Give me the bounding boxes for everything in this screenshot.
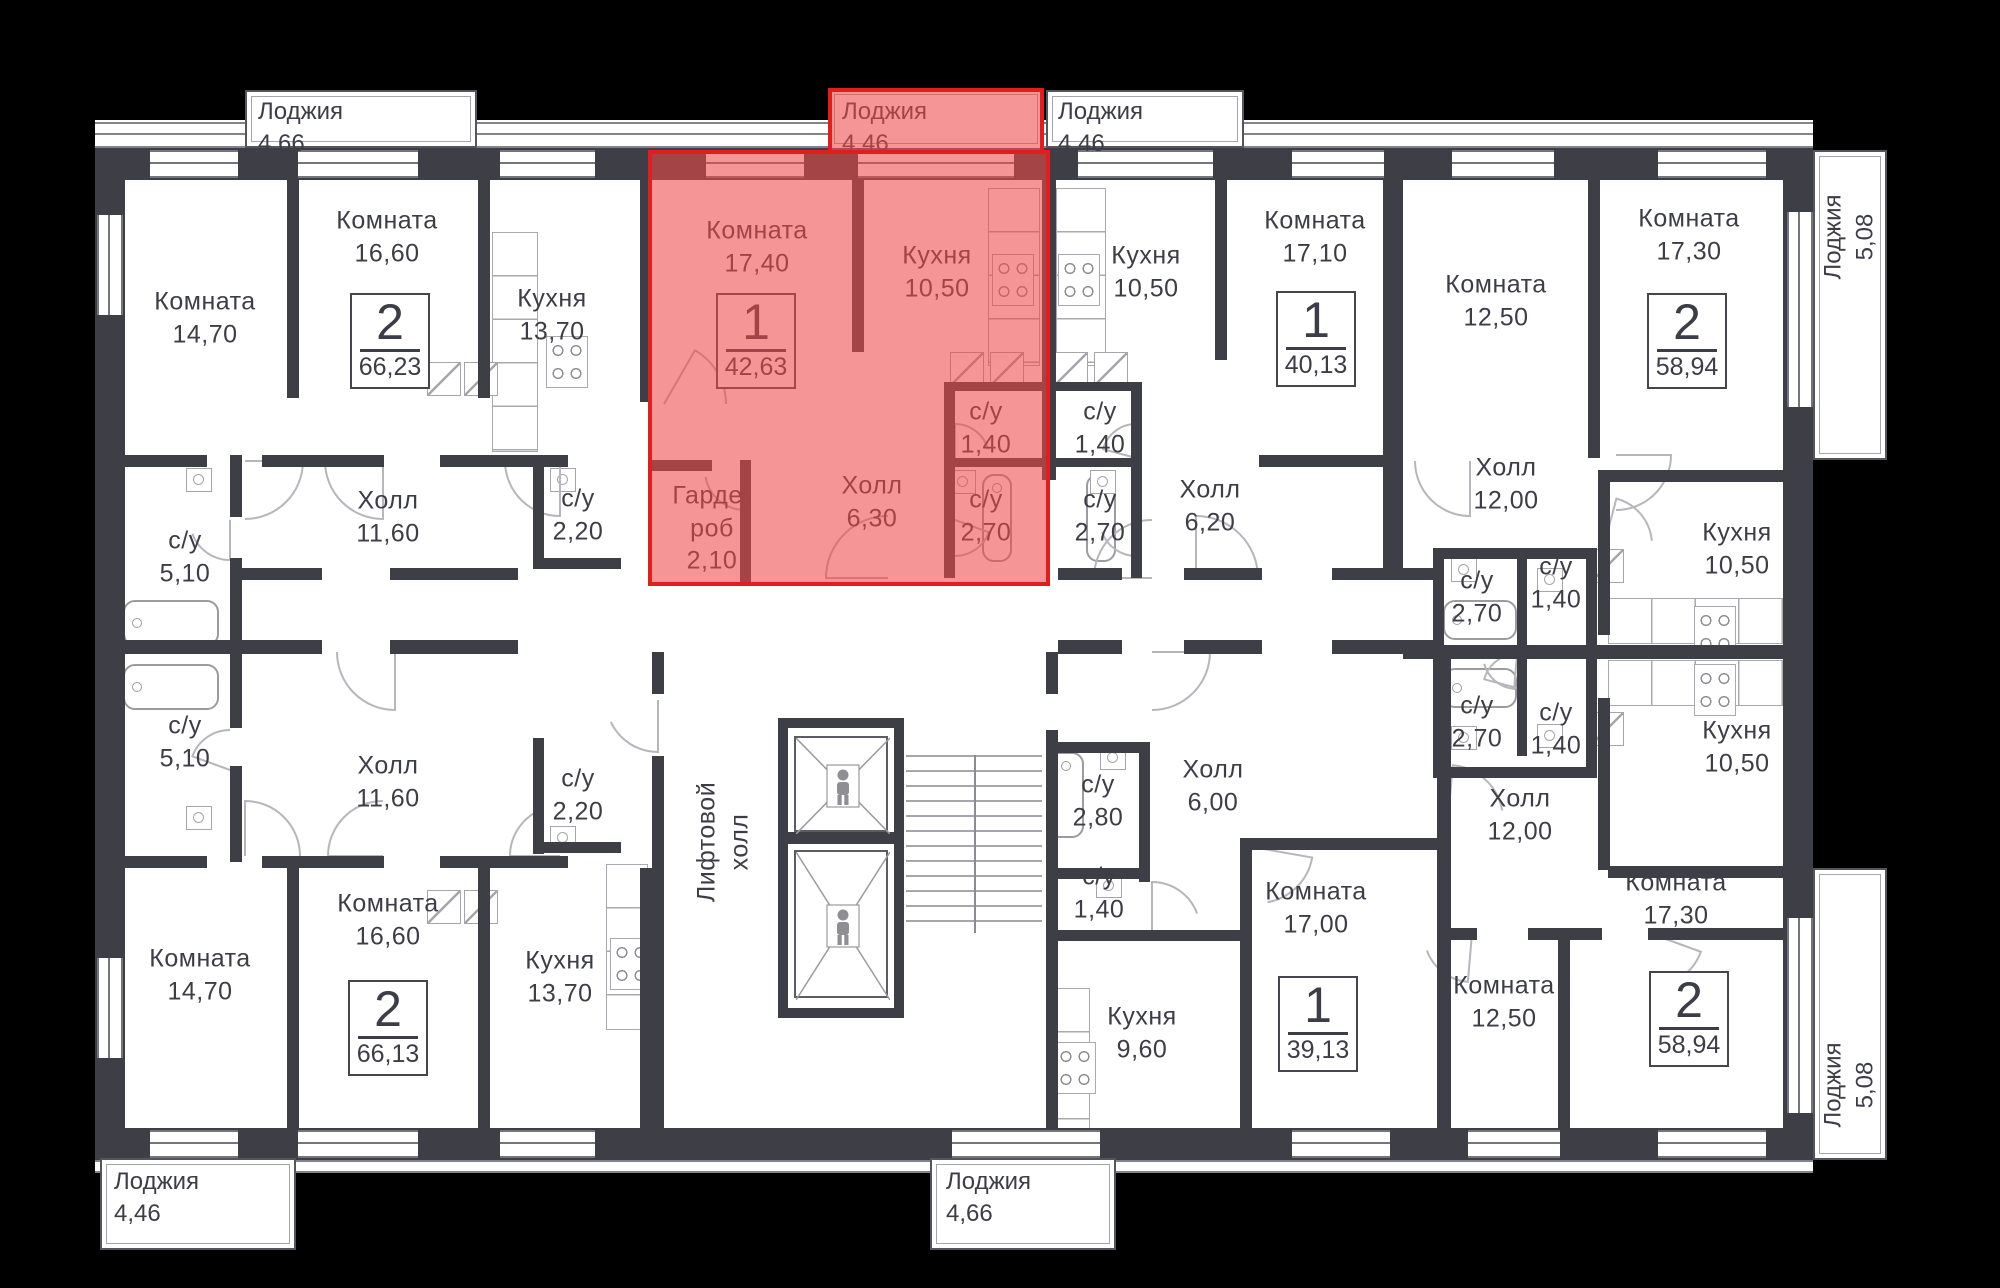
wall — [1131, 382, 1142, 578]
room-area: 16,60 — [336, 237, 437, 270]
loggia-name: Лоджия — [1818, 1042, 1850, 1127]
room-area: 5,10 — [160, 557, 211, 590]
room-name: с/у — [1531, 697, 1582, 730]
room-area: 12,50 — [1453, 1002, 1554, 1035]
room-name: Кухня — [525, 945, 594, 978]
apartment-badge[interactable]: 266,13 — [348, 980, 428, 1076]
apartment-badge[interactable]: 266,23 — [350, 293, 430, 389]
room-name: Кухня — [1107, 1001, 1176, 1034]
room-label: Кухня10,50 — [1111, 240, 1180, 305]
room-label: с/у2,70 — [1075, 484, 1126, 549]
room-name: с/у — [1452, 565, 1503, 598]
room-area: 1,40 — [1531, 583, 1582, 616]
wall — [533, 738, 544, 854]
apartment-badge[interactable]: 258,94 — [1649, 971, 1729, 1067]
room-name: с/у — [553, 483, 604, 516]
badge-room-count: 2 — [352, 296, 428, 348]
badge-room-count: 2 — [350, 983, 426, 1035]
loggia-area: 4,66 — [946, 1198, 1031, 1230]
badge-room-count: 1 — [1280, 979, 1356, 1031]
room-label: Комната17,30 — [1638, 203, 1739, 268]
room-area: 17,30 — [1638, 235, 1739, 268]
room-label: Кухня10,50 — [1702, 517, 1771, 582]
wall — [478, 868, 490, 1128]
room-area: 10,50 — [1111, 272, 1180, 305]
room-area: 13,70 — [517, 315, 586, 348]
wall — [230, 455, 242, 517]
room-name: Холл — [1180, 474, 1241, 507]
room-label: Комната14,70 — [149, 943, 250, 1008]
room-name: Комната — [149, 943, 250, 976]
loggia-label: Лоджия4,66 — [258, 96, 343, 161]
window — [500, 1130, 595, 1158]
room-label: с/у2,20 — [553, 763, 604, 828]
window — [150, 150, 238, 178]
wall — [440, 455, 568, 467]
room-area: 17,30 — [1625, 899, 1726, 932]
badge-room-count: 2 — [1649, 296, 1725, 348]
window — [150, 1130, 238, 1158]
wall — [287, 868, 299, 1128]
wall — [1445, 928, 1477, 940]
badge-area: 66,13 — [350, 1040, 426, 1069]
room-label: с/у1,40 — [1075, 396, 1126, 461]
room-area: 12,50 — [1445, 301, 1546, 334]
badge-area: 39,13 — [1280, 1036, 1356, 1065]
loggia-name: Лоджия — [114, 1166, 199, 1198]
elevator — [794, 850, 888, 998]
wall — [1058, 640, 1122, 654]
wall — [1332, 640, 1433, 654]
sink — [186, 806, 212, 830]
wall — [778, 718, 904, 728]
cabinet-square — [1094, 352, 1128, 386]
wall — [533, 842, 621, 853]
apartment-badge[interactable]: 258,94 — [1647, 293, 1727, 389]
window — [298, 1130, 418, 1158]
room-label: Лифтовой холл — [691, 782, 756, 902]
cabinet-square — [1054, 352, 1088, 386]
room-area: 17,10 — [1264, 237, 1365, 270]
wall — [1046, 730, 1058, 1128]
wall — [1586, 548, 1597, 778]
room-name: с/у — [160, 525, 211, 558]
wall — [1528, 928, 1602, 940]
wall — [478, 178, 490, 398]
room-label: Комната14,70 — [154, 286, 255, 351]
room-area: 2,70 — [1452, 597, 1503, 630]
wall — [1139, 742, 1150, 882]
wall — [533, 558, 621, 569]
wall — [390, 568, 518, 580]
room-area: 6,20 — [1180, 506, 1241, 539]
room-label: с/у1,40 — [1074, 861, 1125, 926]
badge-room-count: 1 — [1278, 294, 1354, 346]
room-area: 11,60 — [356, 782, 419, 815]
room-name: Кухня — [517, 283, 586, 316]
room-name: Кухня — [1111, 240, 1180, 273]
wall — [652, 652, 664, 694]
room-name: с/у — [1075, 396, 1126, 429]
room-label: Комната16,60 — [336, 205, 437, 270]
elevator — [794, 736, 888, 832]
room-area: 1,40 — [1074, 893, 1125, 926]
wall — [894, 718, 904, 1018]
bathtub — [123, 664, 219, 710]
room-label: с/у2,80 — [1073, 769, 1124, 834]
loggia-name: Лоджия — [258, 96, 343, 128]
wall — [1403, 645, 1813, 659]
room-label: с/у2,70 — [1452, 690, 1503, 755]
wall — [440, 856, 568, 868]
room-name: Комната — [1453, 970, 1554, 1003]
window — [952, 1130, 1100, 1158]
wall — [1058, 568, 1122, 580]
loggia-area: 4,46 — [114, 1198, 199, 1230]
window — [1658, 150, 1766, 178]
room-area: 12,00 — [1487, 815, 1552, 848]
wall — [778, 718, 788, 1018]
stove — [1058, 254, 1100, 306]
highlighted-apartment[interactable] — [648, 150, 1050, 586]
wall — [1046, 742, 1146, 753]
room-label: Комната17,00 — [1265, 876, 1366, 941]
room-label: Кухня13,70 — [517, 283, 586, 348]
room-label: с/у2,70 — [1452, 565, 1503, 630]
wall — [230, 766, 242, 858]
stove — [1694, 664, 1736, 716]
wall — [1046, 930, 1248, 941]
window — [1292, 150, 1384, 178]
room-label: Комната17,30 — [1625, 867, 1726, 932]
room-name: Кухня — [1702, 715, 1771, 748]
wall — [1608, 470, 1783, 482]
room-label: с/у2,20 — [553, 483, 604, 548]
loggia-area: 5,08 — [1850, 194, 1882, 279]
wall — [1598, 470, 1610, 635]
room-area: 5,10 — [160, 742, 211, 775]
room-area: 2,80 — [1073, 801, 1124, 834]
room-name: с/у — [1074, 861, 1125, 894]
room-area: 10,50 — [1702, 549, 1771, 582]
room-label: Кухня10,50 — [1702, 715, 1771, 780]
room-name: Холл — [1487, 783, 1552, 816]
room-name: Холл — [1183, 754, 1244, 787]
room-name: с/у — [1452, 690, 1503, 723]
room-area: 10,50 — [1702, 747, 1771, 780]
loggia-label: Лоджия5,08 — [1818, 194, 1883, 279]
apartment-badge[interactable]: 139,13 — [1278, 976, 1358, 1072]
loggia-area: 4,66 — [258, 128, 343, 160]
room-area: 2,70 — [1452, 722, 1503, 755]
room-label: с/у1,40 — [1531, 697, 1582, 762]
stove — [1054, 1042, 1096, 1094]
room-area: 1,40 — [1531, 729, 1582, 762]
loggia-label: Лоджия4,66 — [946, 1166, 1031, 1231]
room-name: с/у — [1073, 769, 1124, 802]
wall — [640, 868, 652, 1128]
badge-area: 58,94 — [1651, 1031, 1727, 1060]
room-area: 17,00 — [1265, 908, 1366, 941]
badge-area: 58,94 — [1649, 353, 1725, 382]
wall — [230, 652, 242, 714]
wall — [95, 455, 207, 467]
window — [1787, 212, 1813, 407]
wall — [262, 455, 384, 467]
wall — [390, 640, 518, 654]
room-label: Холл6,00 — [1183, 754, 1244, 819]
room-name: Комната — [1265, 876, 1366, 909]
badge-area: 40,13 — [1278, 351, 1354, 380]
wall — [1184, 568, 1262, 580]
wall — [95, 856, 207, 868]
room-name: Холл — [1473, 452, 1538, 485]
room-label: Кухня13,70 — [525, 945, 594, 1010]
badge-room-count: 2 — [1651, 974, 1727, 1026]
window — [97, 215, 123, 315]
room-name: Комната — [1264, 205, 1365, 238]
room-area: 14,70 — [149, 975, 250, 1008]
room-label: Комната12,50 — [1445, 269, 1546, 334]
wall — [1558, 940, 1570, 1128]
wall — [1383, 178, 1403, 580]
room-label: Холл12,00 — [1487, 783, 1552, 848]
loggia-name: Лоджия — [1058, 96, 1143, 128]
apartment-badge[interactable]: 140,13 — [1276, 291, 1356, 387]
window — [1292, 1130, 1390, 1158]
wall — [1433, 767, 1597, 778]
room-label: Комната16,60 — [337, 888, 438, 953]
room-name: Комната — [336, 205, 437, 238]
window — [1452, 150, 1554, 178]
room-area: 1,40 — [1075, 428, 1126, 461]
loggia-label: Лоджия5,08 — [1818, 1042, 1883, 1127]
loggia-label: Лоджия4,46 — [114, 1166, 199, 1231]
room-label: Холл6,20 — [1180, 474, 1241, 539]
wall — [778, 1008, 904, 1018]
wall — [1184, 640, 1262, 654]
room-label: с/у5,10 — [160, 710, 211, 775]
wall — [1259, 455, 1383, 467]
wall — [1588, 178, 1600, 458]
room-name: Холл — [356, 750, 419, 783]
loggia-label: Лоджия4,46 — [1058, 96, 1143, 161]
room-label: Кухня9,60 — [1107, 1001, 1176, 1066]
room-label: с/у1,40 — [1531, 551, 1582, 616]
room-label: Комната12,50 — [1453, 970, 1554, 1035]
wall — [1046, 652, 1058, 694]
room-name: с/у — [1531, 551, 1582, 584]
room-label: Комната17,10 — [1264, 205, 1365, 270]
wall — [1240, 838, 1445, 850]
wall — [287, 178, 299, 398]
stairs — [906, 755, 1042, 933]
window — [500, 150, 595, 178]
sink — [186, 468, 212, 492]
badge-area: 66,23 — [352, 353, 428, 382]
window — [1787, 918, 1813, 1113]
room-name: Холл — [356, 485, 419, 518]
room-area: 2,20 — [553, 515, 604, 548]
wall — [1598, 698, 1610, 870]
highlighted-apartment-loggia[interactable] — [828, 88, 1044, 154]
wall — [1240, 850, 1252, 1128]
room-area: 2,20 — [553, 795, 604, 828]
room-area: 13,70 — [525, 977, 594, 1010]
loggia-area: 5,08 — [1850, 1042, 1882, 1127]
cabinet-square — [427, 362, 461, 396]
loggia-area: 4,46 — [1058, 128, 1143, 160]
room-name: с/у — [1075, 484, 1126, 517]
room-area: 11,60 — [356, 517, 419, 550]
room-name: с/у — [160, 710, 211, 743]
room-name: Комната — [154, 286, 255, 319]
wall — [1437, 652, 1451, 1128]
wall — [1332, 568, 1433, 580]
room-name: Комната — [1445, 269, 1546, 302]
room-name: с/у — [553, 763, 604, 796]
wall — [1043, 382, 1142, 391]
loggia-name: Лоджия — [946, 1166, 1031, 1198]
wall — [95, 640, 322, 654]
room-area: 2,70 — [1075, 516, 1126, 549]
room-name: Комната — [337, 888, 438, 921]
wall — [652, 756, 664, 1128]
window — [97, 958, 123, 1058]
elevator-icon — [796, 852, 890, 1000]
wall — [230, 568, 322, 580]
window — [1658, 1130, 1766, 1158]
room-area: 14,70 — [154, 318, 255, 351]
wall — [533, 455, 544, 567]
floor-plan-canvas: Комната14,70Комната16,60Кухня13,70Комнат… — [0, 0, 2000, 1288]
room-label: с/у5,10 — [160, 525, 211, 590]
room-label: Холл11,60 — [356, 750, 419, 815]
room-name: Комната — [1625, 867, 1726, 900]
room-area: 16,60 — [337, 920, 438, 953]
room-name: Кухня — [1702, 517, 1771, 550]
room-name: Комната — [1638, 203, 1739, 236]
room-area: 6,00 — [1183, 786, 1244, 819]
room-area: 9,60 — [1107, 1033, 1176, 1066]
wall — [262, 856, 384, 868]
room-area: 12,00 — [1473, 484, 1538, 517]
window — [1468, 1130, 1560, 1158]
room-label: Холл11,60 — [356, 485, 419, 550]
room-name: Лифтовой холл — [691, 782, 756, 902]
room-label: Холл12,00 — [1473, 452, 1538, 517]
loggia-name: Лоджия — [1818, 194, 1850, 279]
elevator-icon — [796, 738, 890, 834]
wall — [1215, 180, 1227, 360]
